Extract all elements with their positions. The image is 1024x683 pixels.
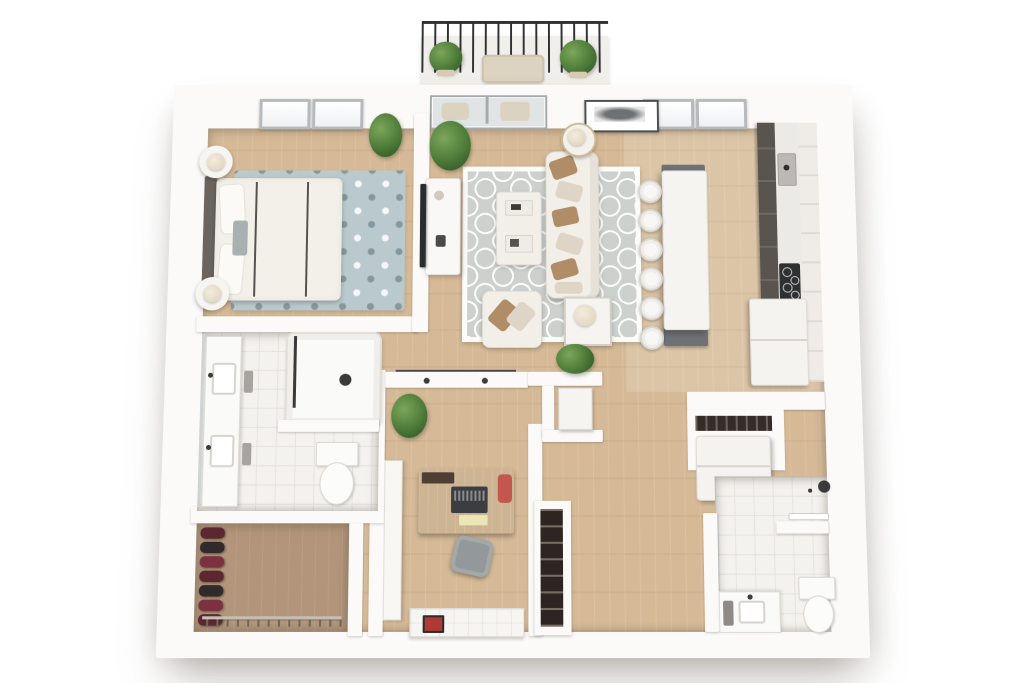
console-decor — [436, 235, 446, 247]
hanger-icon — [329, 619, 331, 626]
bath-mat — [242, 443, 252, 465]
balcony-plant-icon — [560, 40, 597, 76]
second-bathroom-west-wall — [703, 513, 719, 632]
laptop-keyboard — [454, 491, 484, 501]
balcony — [421, 21, 608, 87]
washer-seam — [697, 465, 770, 467]
bedroom-skylight — [312, 99, 363, 129]
balcony-plant-icon — [429, 42, 462, 74]
hanger-icon — [298, 619, 300, 626]
vanity-sink — [211, 363, 236, 395]
stool-icon — [640, 326, 664, 350]
reflected-patio-chair — [500, 102, 529, 121]
clothes-item — [198, 600, 223, 611]
duvet-trim — [305, 182, 309, 297]
desk-notepad — [459, 515, 488, 525]
glass-door-mullion — [486, 97, 489, 124]
hall-closet-clothes — [540, 509, 563, 627]
shower-rod-icon — [293, 336, 297, 408]
stool-icon — [639, 267, 663, 290]
sofa-pillow — [551, 206, 580, 228]
desk-red-pad — [498, 474, 512, 502]
floor-plan-scene — [156, 85, 871, 658]
sofa-pillow — [548, 154, 579, 181]
artwork-sketch — [594, 107, 645, 122]
vanity-sink — [738, 601, 765, 624]
bath-mat — [244, 371, 254, 393]
double-vanity — [201, 336, 242, 507]
refrigerator — [749, 299, 809, 386]
bench-book — [423, 615, 445, 633]
water-heater-unit — [558, 388, 592, 430]
door-handle-icon — [424, 378, 430, 384]
bath-mat — [723, 601, 734, 626]
burner-icon — [782, 267, 792, 277]
table-lamp — [568, 128, 586, 145]
floor-plan-canvas — [0, 0, 1024, 683]
coffee-table — [496, 192, 542, 266]
office-plant-icon — [391, 394, 428, 438]
shower-half-wall — [776, 521, 828, 533]
table-lamp — [574, 304, 596, 326]
kitchen-half-wall — [687, 392, 825, 410]
hanger-icon — [278, 619, 280, 626]
island-stools — [638, 180, 664, 356]
sofa-pillow — [554, 232, 584, 256]
table-decor — [510, 239, 519, 247]
office-cabinet — [383, 460, 403, 620]
laundry-closet-clothes — [695, 416, 772, 431]
bathroom-vanity — [719, 591, 781, 633]
stool-icon — [639, 238, 663, 261]
sofa-pillow — [555, 282, 583, 294]
office-north-wall — [385, 372, 528, 388]
hanger-icon — [216, 619, 218, 626]
utility-closet-wall — [542, 430, 603, 442]
hanger-icon — [309, 619, 311, 626]
desk-books — [422, 472, 454, 483]
hanger-icon — [247, 619, 249, 626]
hanger-icon — [227, 619, 229, 626]
stool-icon — [638, 209, 662, 232]
tufted-bench — [409, 608, 524, 637]
balcony-lounge-chair — [482, 55, 544, 83]
burner-icon — [790, 276, 799, 285]
sofa-pillow — [550, 257, 580, 281]
apartment-shell — [156, 85, 871, 658]
hall-closet-frame — [534, 501, 571, 635]
shower-head-icon — [818, 480, 831, 492]
hanger-icon — [237, 619, 239, 626]
stool-icon — [639, 297, 663, 321]
bath-accessory — [339, 374, 351, 386]
clothes-item — [199, 571, 224, 582]
bathtub-shower — [284, 332, 382, 426]
clothes-item — [200, 527, 225, 538]
hanger-icon — [339, 619, 341, 626]
console-decor — [434, 191, 444, 201]
living-plant-icon — [429, 121, 471, 171]
office-chair — [449, 534, 495, 578]
faucet-icon — [747, 594, 752, 599]
cooktop — [779, 263, 801, 300]
ledge-plant-icon — [556, 344, 594, 374]
stool-icon — [638, 180, 662, 203]
faucet-icon — [783, 165, 789, 171]
kitchen-skylight — [696, 99, 748, 129]
vanity-sink — [209, 435, 234, 467]
wall-artwork-frame — [584, 100, 659, 132]
desk — [418, 468, 514, 533]
fridge-seam — [751, 339, 807, 341]
tv-screen — [420, 184, 427, 267]
armchair — [482, 291, 542, 348]
sofa — [545, 151, 599, 298]
hanging-clothes — [198, 527, 225, 628]
reflected-patio-chair — [442, 103, 469, 120]
duvet-trim — [253, 182, 258, 297]
bed — [213, 178, 342, 300]
hanger-icon — [319, 619, 321, 626]
wall-closet-east — [348, 523, 364, 636]
door-handle-icon — [482, 378, 488, 384]
wall-bedroom-south — [196, 316, 418, 332]
sofa-pillow — [555, 180, 584, 203]
hanger-icon — [206, 619, 208, 626]
bedroom-skylight — [259, 99, 311, 129]
hanger-icon — [268, 619, 270, 626]
towel-bar — [788, 513, 829, 520]
table-books — [511, 204, 521, 210]
hanger-icon — [257, 619, 259, 626]
tv-console — [425, 178, 461, 275]
clothes-item — [199, 585, 224, 596]
kitchen-island — [662, 170, 710, 330]
balcony-planter-pot — [570, 72, 588, 79]
clothes-item — [200, 542, 225, 553]
hanger-icon — [288, 619, 290, 626]
clothes-item — [199, 556, 224, 567]
sliding-door-rail — [396, 370, 516, 372]
balcony-planter-pot — [437, 70, 455, 77]
laptop — [451, 487, 488, 514]
tub-half-wall — [278, 420, 379, 432]
toilet-bowl — [803, 595, 835, 632]
throw-pillow — [232, 221, 248, 256]
closet-hangers — [206, 619, 342, 626]
utility-closet-wall — [528, 372, 602, 386]
